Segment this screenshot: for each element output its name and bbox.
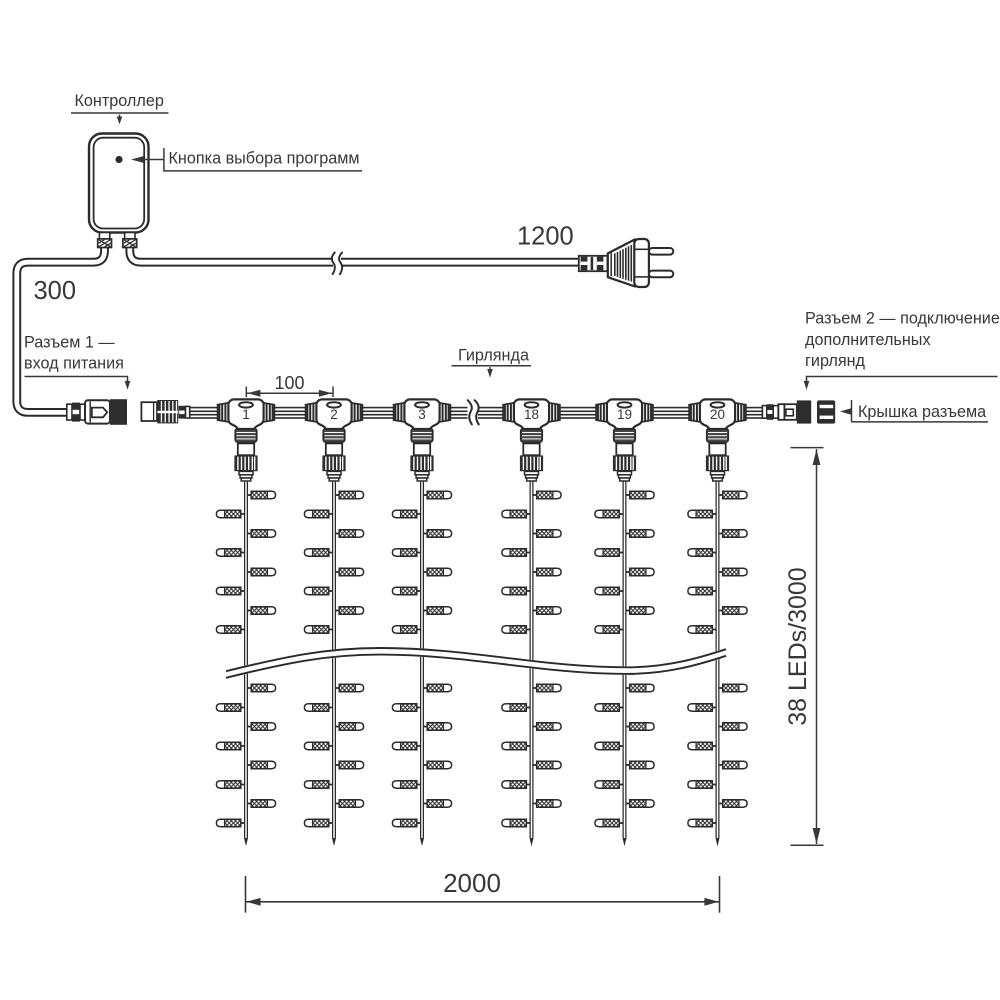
svg-text:100: 100 [274,373,304,393]
svg-text:38 LEDs/3000: 38 LEDs/3000 [784,567,812,725]
svg-text:19: 19 [617,407,632,422]
svg-text:Разъем 2 — подключение: Разъем 2 — подключение [805,310,1000,328]
svg-text:вход питания: вход питания [24,355,124,373]
svg-text:2: 2 [330,407,338,422]
svg-text:дополнительных: дополнительных [805,331,931,349]
svg-text:300: 300 [34,277,77,305]
svg-text:Кнопка выбора программ: Кнопка выбора программ [169,150,360,168]
svg-text:3: 3 [418,407,426,422]
svg-text:1: 1 [242,407,250,422]
svg-text:Крышка разъема: Крышка разъема [858,403,986,421]
svg-text:Контроллер: Контроллер [75,92,164,110]
svg-text:1200: 1200 [517,223,574,251]
svg-text:гирлянд: гирлянд [805,352,866,370]
svg-text:Гирлянда: Гирлянда [458,347,529,365]
svg-text:18: 18 [524,407,539,422]
svg-text:20: 20 [710,407,725,422]
svg-text:Разъем 1 —: Разъем 1 — [24,334,115,352]
svg-text:2000: 2000 [443,868,501,898]
